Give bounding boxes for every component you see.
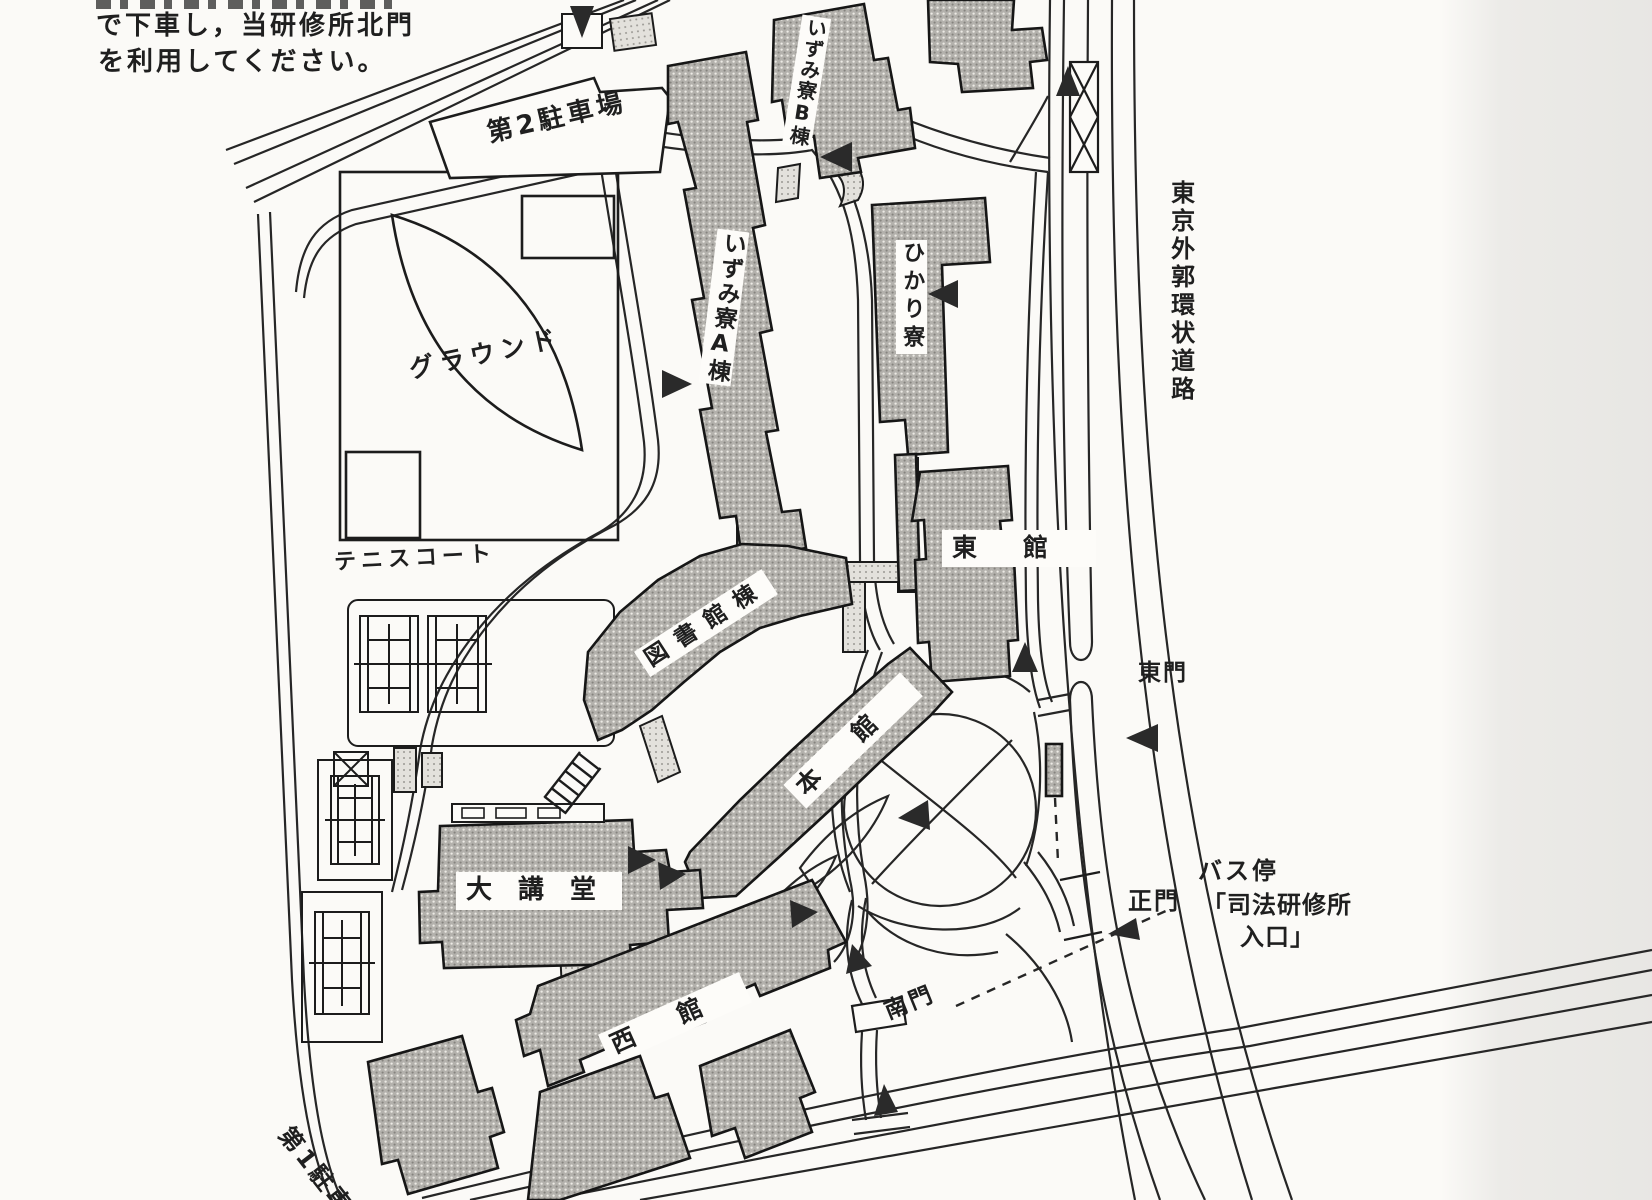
label-main-gate: 正門 <box>1128 888 1180 916</box>
ring-road-line <box>1062 0 1160 1200</box>
corridor <box>640 716 680 782</box>
entrance-arrow-icon <box>898 800 930 830</box>
map-drawing <box>0 0 1652 1200</box>
north-gate-pad <box>610 13 656 51</box>
ground-inner-rect <box>522 196 614 258</box>
campus-road <box>1024 862 1060 932</box>
main-gate-marks <box>1060 872 1102 940</box>
tennis-court <box>422 616 492 712</box>
label-bus-stop-3: 入口」 <box>1240 924 1315 952</box>
label-bus-stop-2: 「司法研修所 <box>1202 892 1352 920</box>
campus-road <box>861 1032 866 1120</box>
campus-road <box>1010 96 1048 162</box>
small-pad <box>422 753 442 787</box>
west-boundary <box>258 214 332 1200</box>
garden-path <box>872 740 1012 884</box>
ring-road-median-u <box>1070 642 1092 700</box>
building-bottom-b <box>700 1030 815 1158</box>
footbridge-crossing <box>1070 62 1098 172</box>
label-hikari: ひかり寮 <box>896 240 927 354</box>
building-east <box>912 466 1018 682</box>
ground-inner-rect <box>346 452 420 538</box>
ring-road-line <box>1134 0 1292 1200</box>
label-east-bldg: 東館 <box>942 530 1096 567</box>
clipped-text-fragment <box>96 0 392 9</box>
building-library <box>584 544 852 740</box>
entrance-arrow-icon <box>846 944 872 974</box>
bus-shelter <box>1046 744 1062 796</box>
tennis-block-outline <box>348 600 614 746</box>
building-hikari <box>872 198 990 455</box>
building-top-right <box>928 0 1047 92</box>
entrance-arrow-icon <box>1126 724 1158 752</box>
garden-bed <box>1006 934 1072 1042</box>
x-box <box>334 752 368 786</box>
building-annex-sw <box>368 1036 504 1194</box>
entrance-arrow-icon <box>662 370 692 398</box>
campus-map: で下車し，当研修所北門 を利用してください。 第2駐車場 グラウンド テニスコー… <box>0 0 1652 1200</box>
corridor <box>776 164 800 202</box>
small-pad <box>394 748 416 792</box>
tennis-court <box>302 892 382 1042</box>
label-auditorium: 大講堂 <box>456 872 622 910</box>
label-ring-road: 東京外郭環状道路 <box>1166 180 1194 404</box>
note-line-2: を利用してください。 <box>98 48 386 78</box>
tennis-court <box>318 760 392 880</box>
entrance-arrow-icon <box>1012 642 1038 672</box>
label-east-gate: 東門 <box>1138 660 1188 686</box>
note-line-1: で下車し，当研修所北門 <box>96 12 415 42</box>
label-bus-stop-1: バス停 <box>1198 858 1279 886</box>
tennis-court <box>354 616 424 712</box>
garden-bed <box>868 912 998 955</box>
entrance-arrow-icon <box>1108 918 1140 940</box>
auditorium-roof-strip <box>452 804 604 822</box>
bus-stop-dashed <box>1055 798 1058 862</box>
east-gate-road <box>1038 694 1070 716</box>
